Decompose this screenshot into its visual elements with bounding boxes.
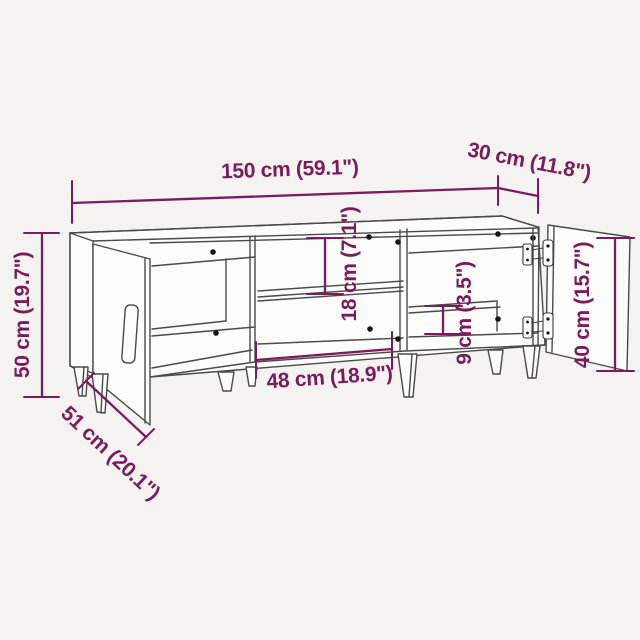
dimension-label: 40 cm (15.7") (571, 242, 594, 368)
screw-dot (495, 231, 501, 237)
dimension-label: 9 cm (3.5") (453, 261, 476, 365)
leg (523, 346, 540, 378)
screw-dot (213, 330, 219, 336)
dimension-width-top: 150 cm (59.1") (72, 156, 498, 223)
leg (218, 372, 234, 391)
product-dimension-diagram: 150 cm (59.1") 30 cm (11.8") 50 cm (19.7… (0, 0, 640, 640)
screw-dot (495, 316, 501, 322)
cabinet-line-drawing: 150 cm (59.1") 30 cm (11.8") 50 cm (19.7… (0, 0, 640, 640)
dimension-label: 30 cm (11.8") (466, 138, 593, 184)
dimension-label: 150 cm (59.1") (221, 156, 359, 184)
leg (398, 354, 417, 397)
dimension-label: 18 cm (7.1") (338, 207, 361, 322)
screw-dot (366, 234, 372, 240)
dimension-label: 50 cm (19.7") (11, 252, 34, 378)
screw-dot (395, 239, 401, 245)
dimension-depth-top: 30 cm (11.8") (466, 138, 593, 213)
leg (488, 350, 503, 374)
screw-dot (210, 249, 216, 255)
screw-dot (395, 336, 401, 342)
screw-dot (367, 326, 373, 332)
dimension-height-left: 50 cm (19.7") (11, 233, 59, 397)
